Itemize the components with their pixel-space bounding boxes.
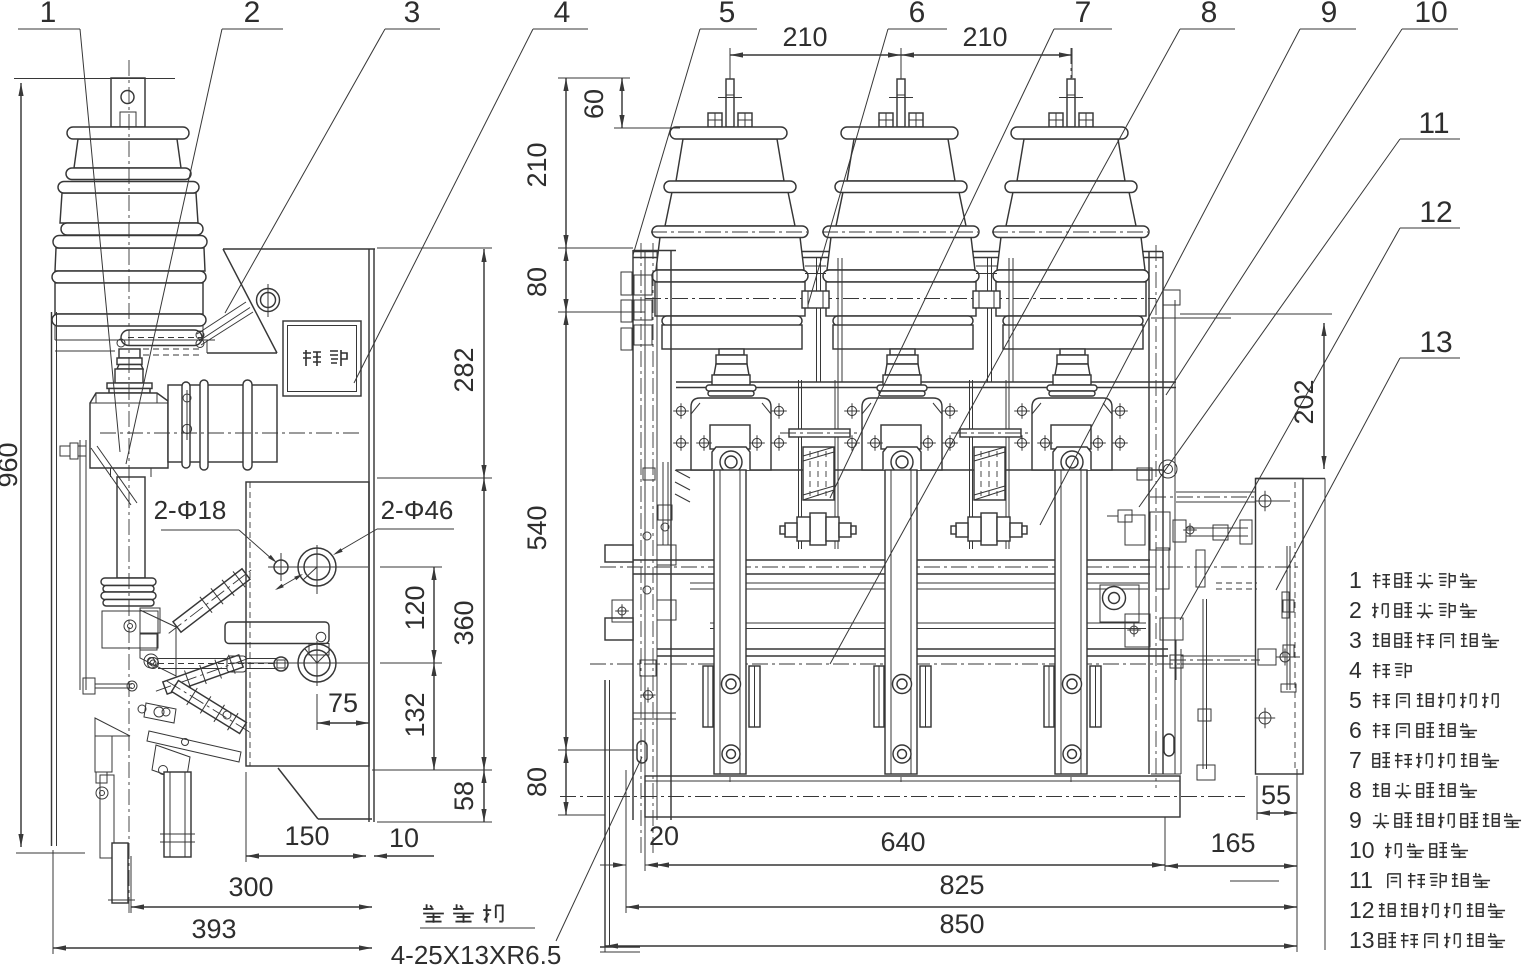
svg-text:640: 640 [880,827,925,857]
svg-text:4-25X13XR6.5: 4-25X13XR6.5 [391,940,562,968]
svg-text:12: 12 [1419,196,1452,229]
svg-text:9: 9 [1321,0,1338,29]
svg-text:282: 282 [449,347,479,392]
svg-text:6: 6 [1349,717,1362,743]
svg-text:13: 13 [1419,326,1452,359]
svg-text:12: 12 [1349,897,1375,923]
svg-text:4: 4 [554,0,571,29]
svg-text:540: 540 [522,505,552,550]
svg-text:2-Φ18: 2-Φ18 [154,495,227,525]
svg-text:1: 1 [1349,567,1362,593]
svg-text:75: 75 [328,688,358,718]
svg-text:8: 8 [1201,0,1218,29]
svg-text:80: 80 [522,267,552,297]
svg-text:3: 3 [404,0,421,29]
svg-text:210: 210 [962,22,1007,52]
svg-text:4: 4 [1349,657,1362,683]
svg-text:2-Φ46: 2-Φ46 [381,495,454,525]
svg-text:8: 8 [1349,777,1362,803]
svg-text:825: 825 [939,870,984,900]
svg-text:60: 60 [579,89,609,119]
svg-text:850: 850 [939,909,984,939]
svg-text:132: 132 [400,692,430,737]
svg-text:5: 5 [1349,687,1362,713]
svg-text:393: 393 [191,914,236,944]
svg-text:960: 960 [0,442,23,487]
svg-text:7: 7 [1349,747,1362,773]
svg-text:210: 210 [522,142,552,187]
svg-text:6: 6 [909,0,926,29]
svg-text:2: 2 [1349,597,1362,623]
svg-text:80: 80 [522,767,552,797]
svg-text:10: 10 [389,823,419,853]
svg-text:55: 55 [1261,780,1291,810]
svg-text:10: 10 [1414,0,1447,29]
svg-text:210: 210 [782,22,827,52]
svg-text:300: 300 [228,872,273,902]
svg-text:10: 10 [1349,837,1375,863]
svg-text:13: 13 [1349,927,1375,953]
svg-text:9: 9 [1349,807,1362,833]
svg-text:360: 360 [449,600,479,645]
svg-text:2: 2 [244,0,261,29]
svg-text:165: 165 [1210,828,1255,858]
svg-text:150: 150 [284,821,329,851]
svg-text:11: 11 [1418,107,1449,140]
svg-text:120: 120 [400,585,430,630]
svg-text:1: 1 [40,0,57,29]
svg-text:11: 11 [1349,867,1373,893]
svg-text:3: 3 [1349,627,1362,653]
svg-text:5: 5 [719,0,736,29]
svg-text:58: 58 [449,781,479,811]
svg-text:7: 7 [1075,0,1092,29]
svg-text:20: 20 [649,821,679,851]
